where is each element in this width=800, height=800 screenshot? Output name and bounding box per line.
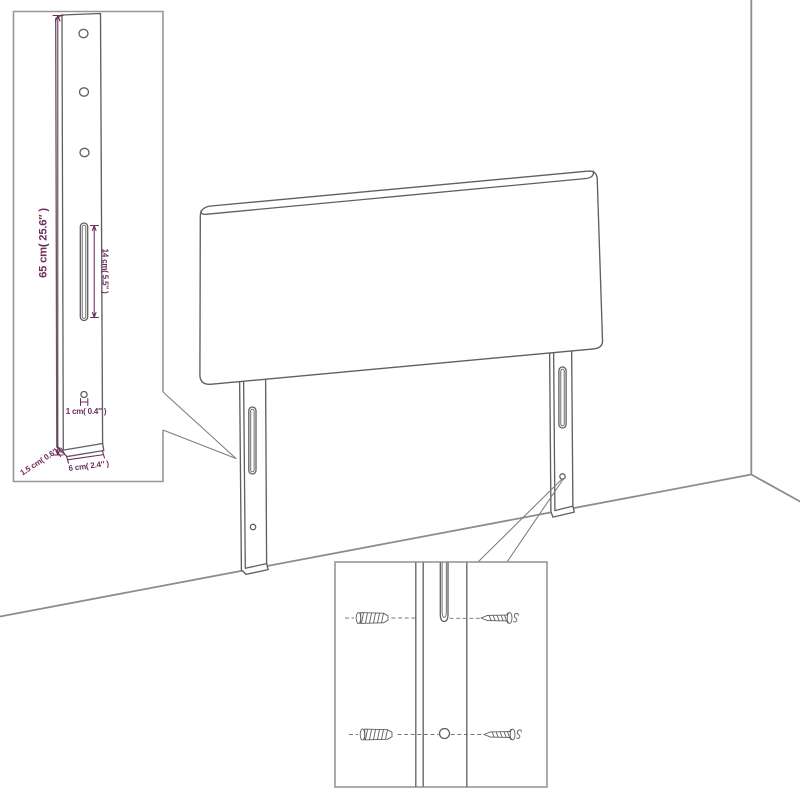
dim-height-label: 65 cm( 25.6″ ) [38, 208, 50, 278]
wall-anchor-icon [356, 612, 388, 623]
headboard-right-leg [550, 346, 575, 517]
dim-slot-label: 14 cm( 5.5″ ) [101, 249, 110, 294]
headboard-panel [200, 171, 603, 384]
mount-leg-closeup [416, 563, 467, 786]
floor-line-right [751, 475, 800, 502]
dim-hole-label: 1 cm( 0.4″ ) [66, 407, 107, 416]
screw-icon [484, 729, 521, 740]
leg-bracket [56, 14, 104, 457]
mount-detail-box [335, 562, 547, 787]
callout-lines-left [163, 392, 236, 459]
mount-hole [440, 729, 450, 739]
screw-icon [481, 613, 518, 624]
headboard-assembly-diagram: 65 cm( 25.6″ ) 14 cm( 5.5″ ) 1 cm( 0.4″ … [0, 0, 800, 800]
floor-line-left [0, 475, 751, 617]
mount-slot [440, 563, 448, 622]
leg-detail-inset: 65 cm( 25.6″ ) 14 cm( 5.5″ ) 1 cm( 0.4″ … [14, 12, 164, 482]
headboard-left-leg [240, 377, 269, 575]
wall-anchor-icon [360, 729, 392, 740]
mount-detail-inset [335, 562, 547, 787]
